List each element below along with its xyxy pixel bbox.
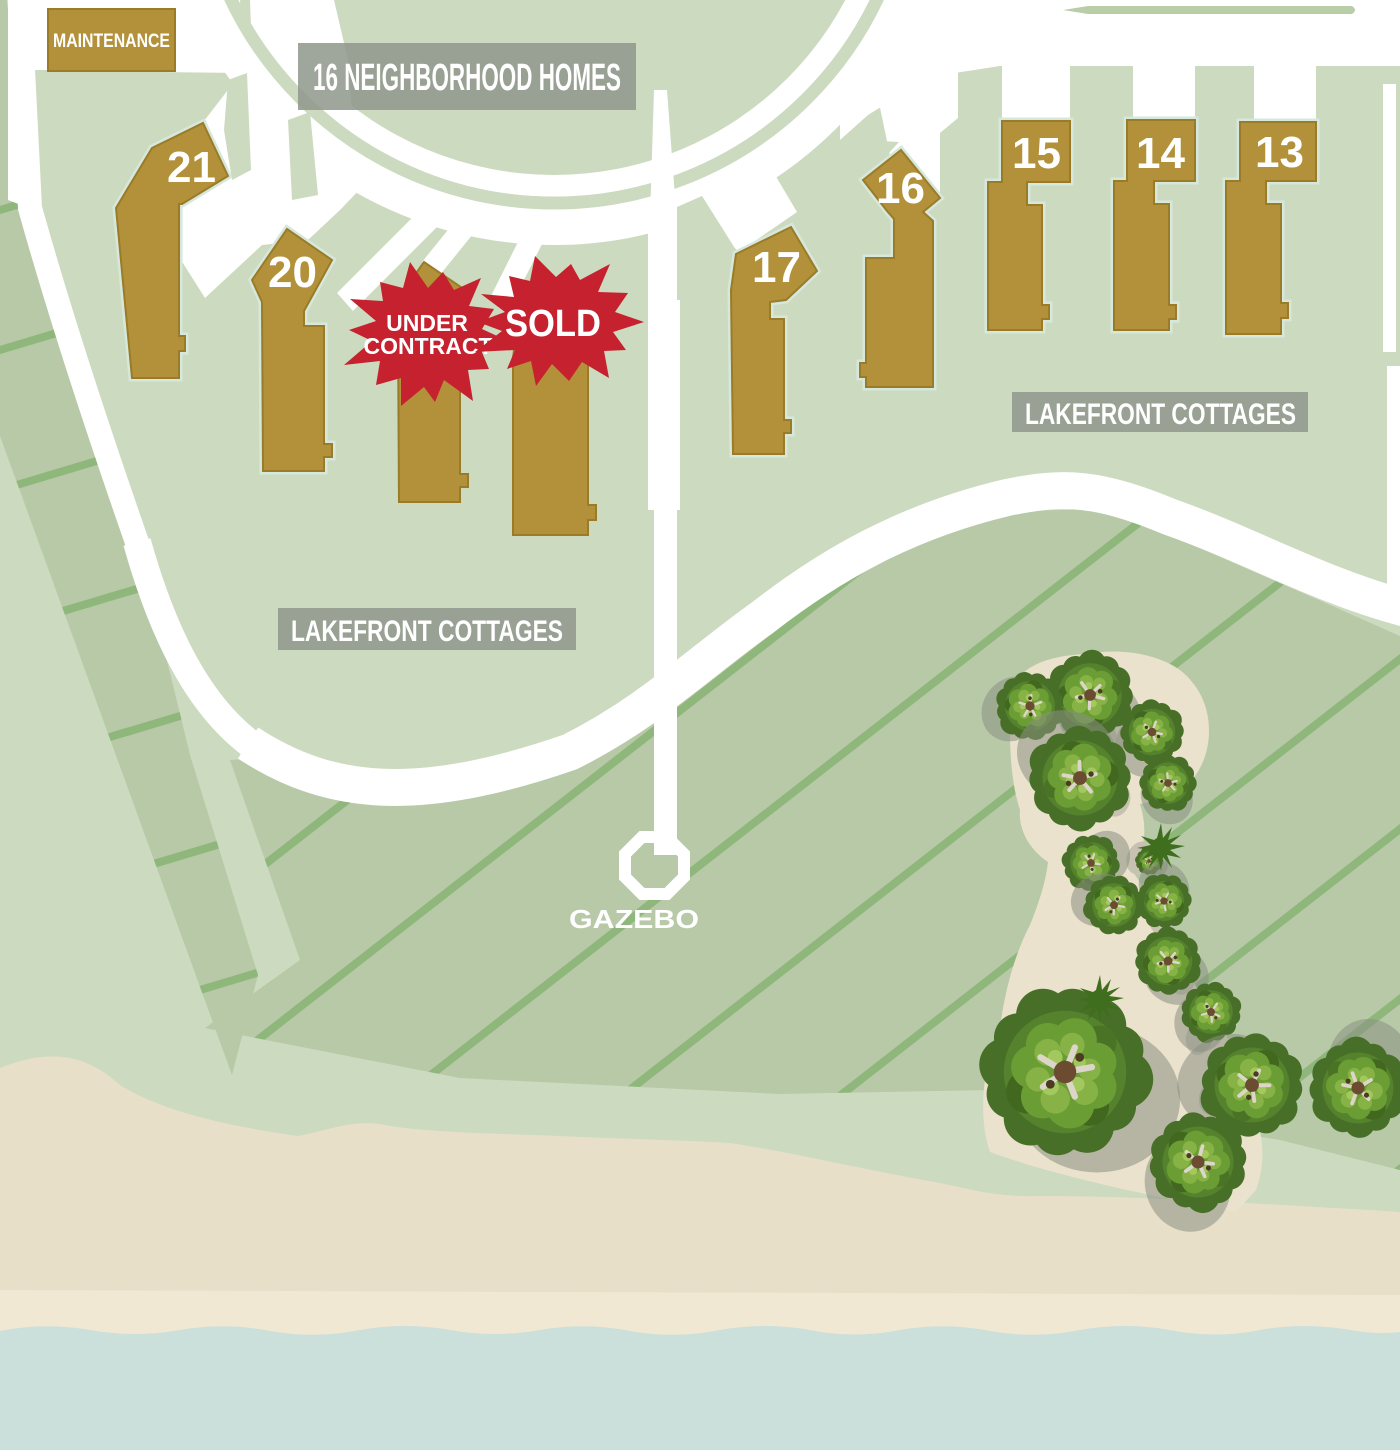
svg-text:15: 15 [1012,129,1061,178]
svg-text:14: 14 [1136,129,1185,178]
svg-text:20: 20 [268,248,317,297]
svg-text:16 NEIGHBORHOOD HOMES: 16 NEIGHBORHOOD HOMES [313,57,621,99]
svg-text:21: 21 [167,143,216,192]
svg-text:GAZEBO: GAZEBO [569,904,699,934]
svg-text:CONTRACT: CONTRACT [363,333,492,359]
svg-text:13: 13 [1255,128,1304,177]
svg-text:LAKEFRONT COTTAGES: LAKEFRONT COTTAGES [291,615,563,648]
svg-text:LAKEFRONT COTTAGES: LAKEFRONT COTTAGES [1025,398,1296,431]
svg-text:16: 16 [876,164,925,213]
svg-text:MAINTENANCE: MAINTENANCE [53,31,170,52]
svg-text:17: 17 [752,243,801,292]
svg-text:SOLD: SOLD [505,303,601,345]
